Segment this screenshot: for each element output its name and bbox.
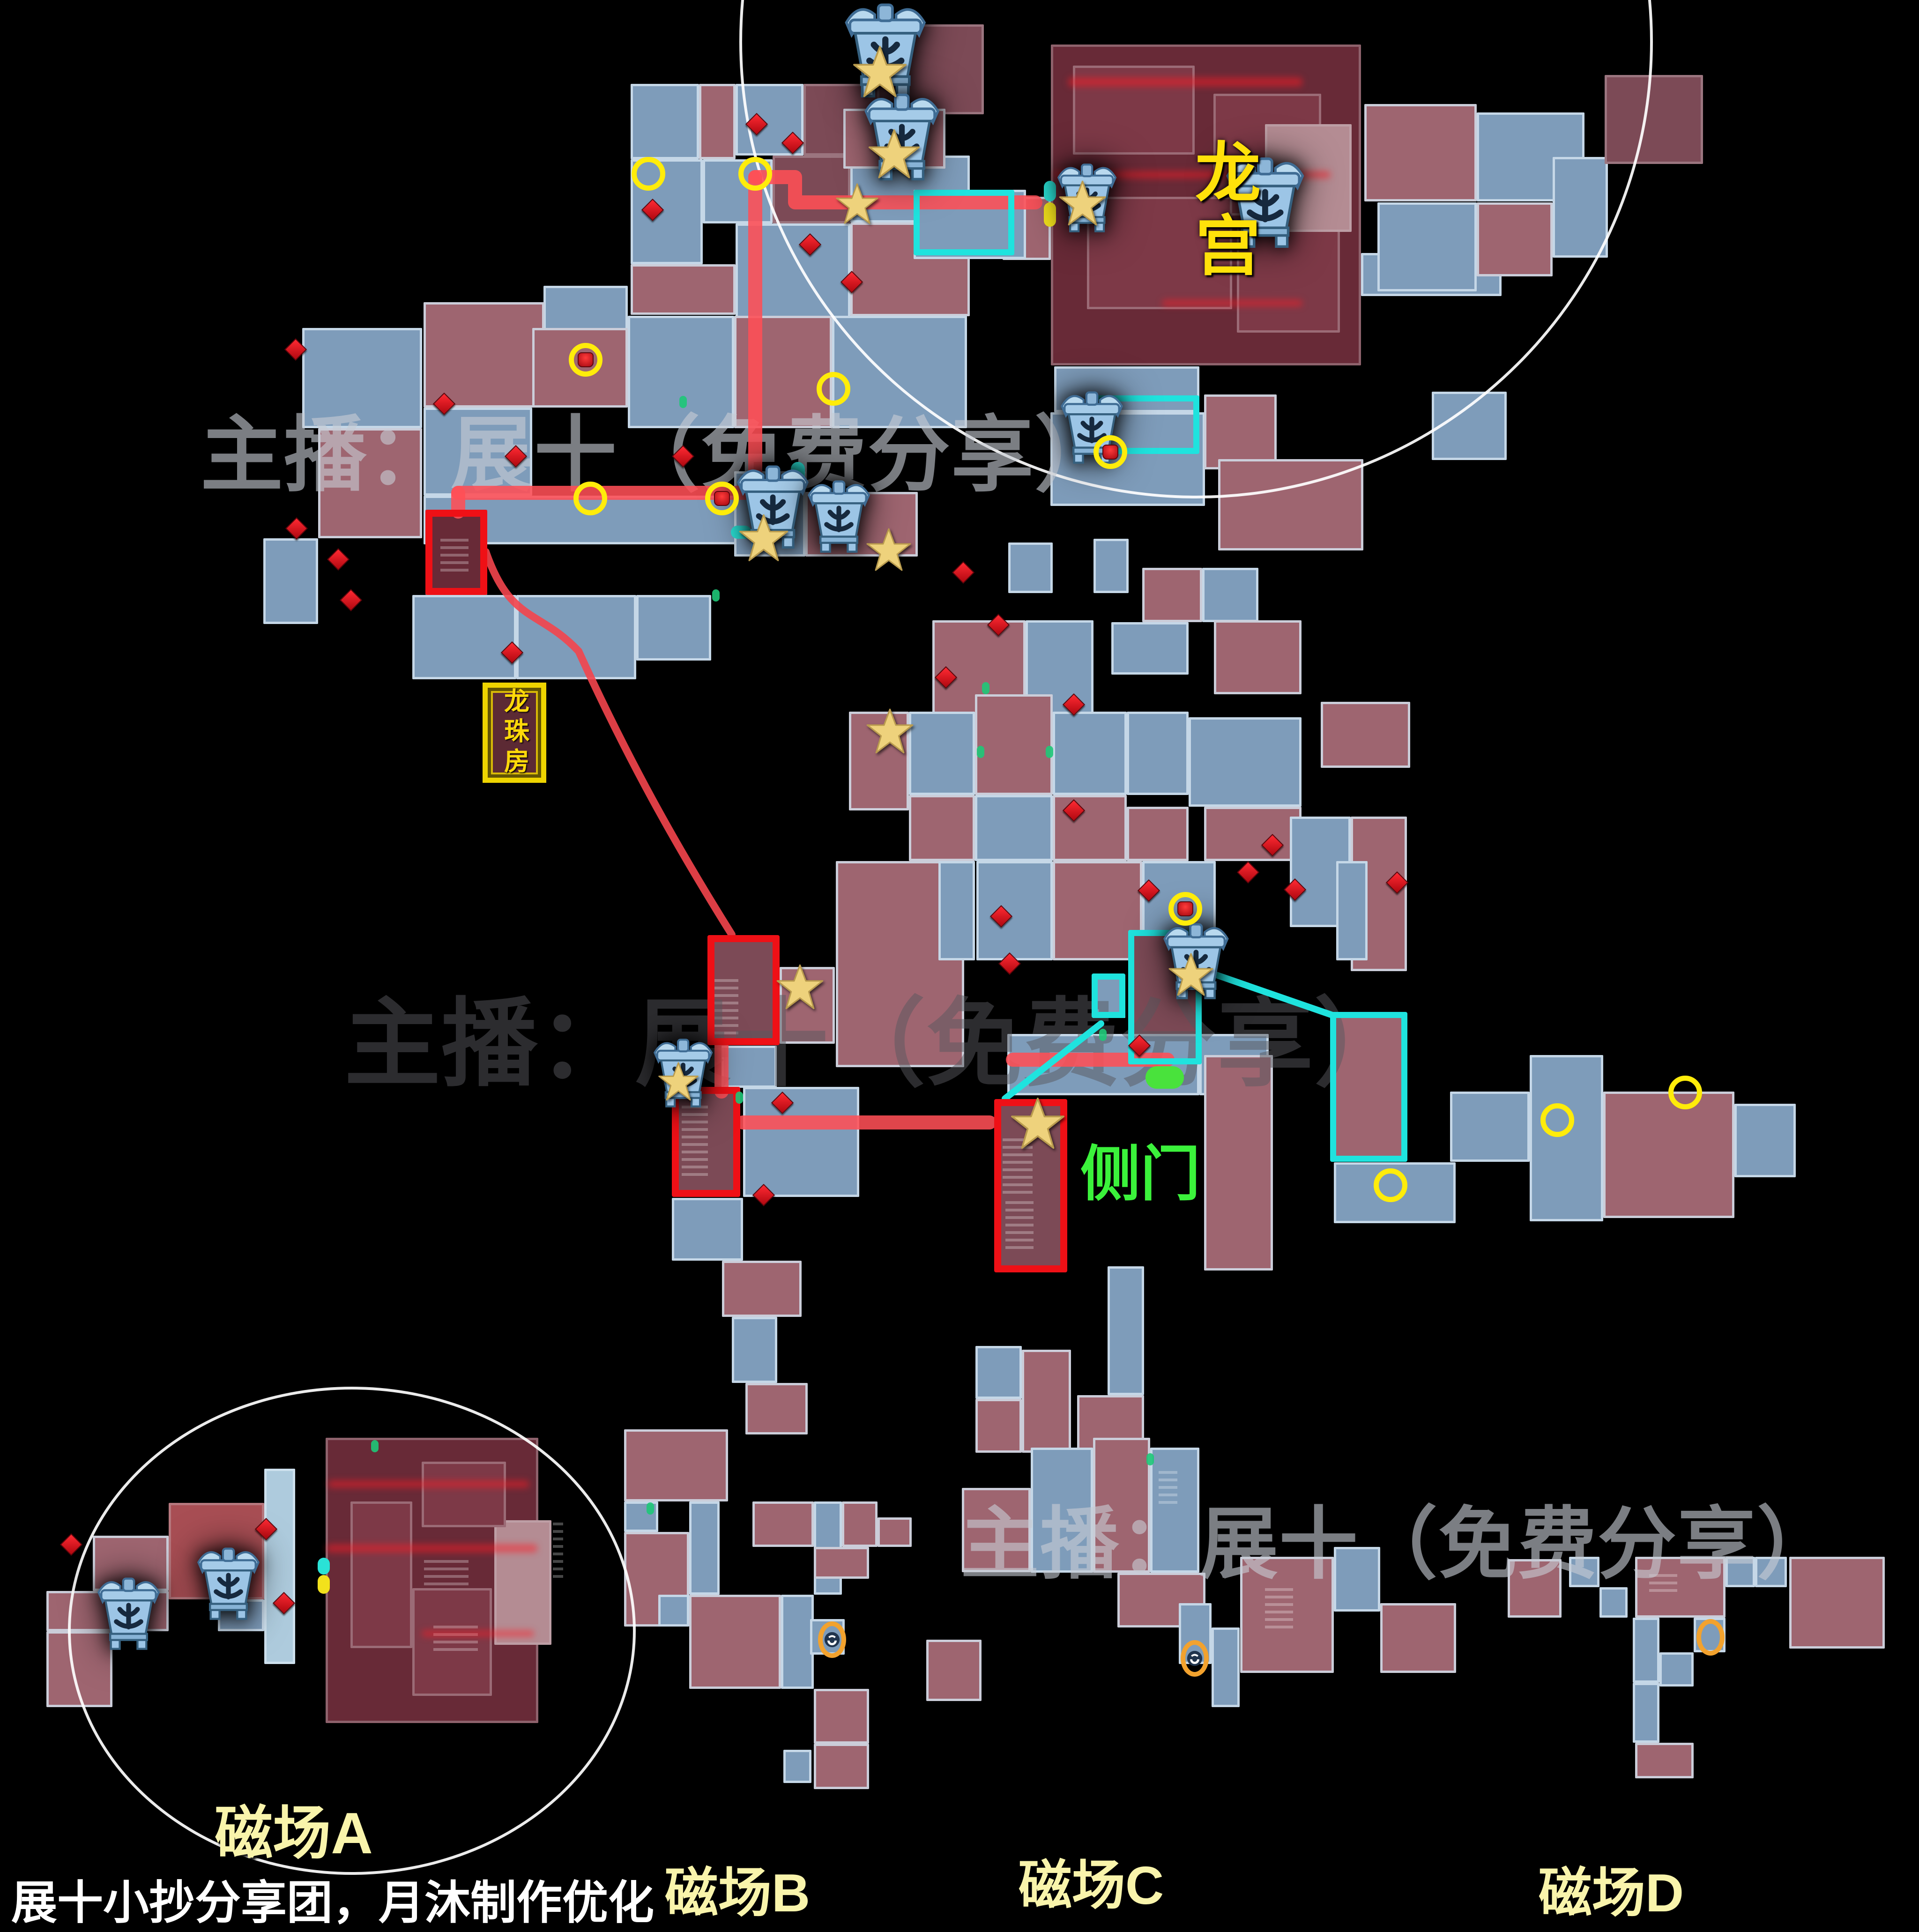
orange-circle-marker bbox=[1181, 1640, 1209, 1677]
orange-circle-marker bbox=[818, 1621, 846, 1658]
dragon-pearl-room-box: 龙珠房 bbox=[483, 683, 546, 783]
label-field-d: 磁场D bbox=[1513, 1850, 1710, 1927]
label-field-c: 磁场C bbox=[993, 1842, 1190, 1919]
label-side-door: 侧门 bbox=[1080, 1125, 1200, 1212]
poi-circles-layer bbox=[0, 0, 1919, 1919]
circled-item-icon bbox=[1177, 901, 1193, 916]
yellow-circle-marker bbox=[1540, 1103, 1574, 1137]
yellow-circle-marker bbox=[632, 157, 665, 191]
cap-glyph-icon bbox=[1186, 1650, 1204, 1667]
yellow-circle-marker bbox=[573, 482, 607, 515]
orange-circle-marker bbox=[1696, 1619, 1725, 1656]
yellow-circle-marker bbox=[1374, 1168, 1407, 1202]
label-field-b: 磁场B bbox=[639, 1850, 836, 1927]
credit-footer-text: 展十小抄分享团，月沐制作优化 bbox=[11, 1865, 654, 1932]
yellow-circle-marker bbox=[817, 372, 850, 406]
circled-item-icon bbox=[578, 352, 594, 367]
yellow-circle-marker bbox=[569, 343, 602, 377]
circled-item-icon bbox=[714, 491, 730, 506]
yellow-circle-marker bbox=[1168, 892, 1202, 926]
label-dragon-palace: 龙宫 bbox=[1175, 138, 1270, 284]
yellow-circle-marker bbox=[705, 482, 739, 515]
yellow-circle-marker bbox=[738, 157, 772, 191]
circled-item-icon bbox=[1102, 445, 1118, 460]
yellow-circle-marker bbox=[1668, 1076, 1702, 1109]
cap-glyph-icon bbox=[823, 1631, 841, 1649]
game-map-canvas: 主播：展十（免费分享） 主播：展十（免费分享） 主播：展十（免费分享） bbox=[0, 0, 1919, 1919]
yellow-circle-marker bbox=[1093, 435, 1127, 469]
label-dragon-pearl-room: 龙珠房 bbox=[496, 688, 533, 778]
label-field-a: 磁场A bbox=[195, 1786, 392, 1870]
